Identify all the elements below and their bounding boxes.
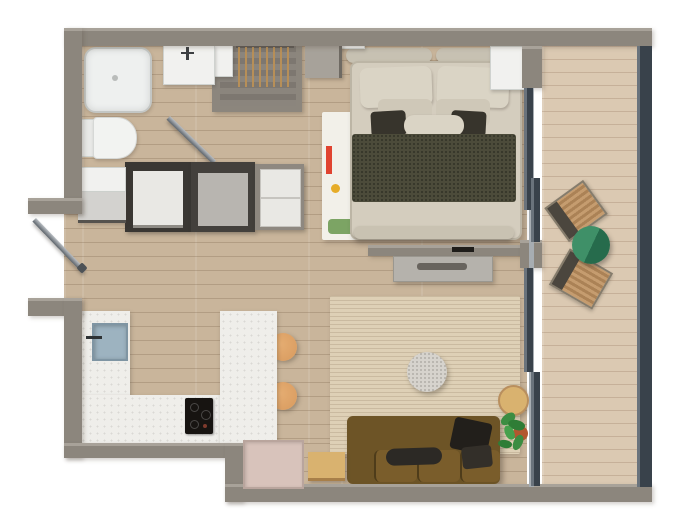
drawer-top — [260, 169, 301, 198]
wall-top — [64, 28, 652, 46]
cooktop-burner-3 — [190, 420, 199, 429]
dresser — [305, 44, 342, 78]
kitchen-counter-island — [220, 311, 277, 443]
shower-tray — [84, 47, 152, 113]
round-pouf — [407, 352, 447, 392]
sliding-glass-panel-3 — [524, 268, 533, 372]
recessed-cabinet — [243, 440, 304, 489]
rug-accent-yellow-dot — [331, 184, 340, 193]
pillow-dark-left — [370, 110, 406, 137]
wardrobe-hangers — [238, 47, 292, 87]
round-side-table — [498, 385, 529, 416]
wall-entry-jog — [28, 198, 82, 214]
balcony-bistro-table — [572, 226, 610, 264]
floor-plan — [0, 0, 680, 532]
toilet-bowl — [93, 117, 137, 159]
cooktop-burner-1 — [190, 403, 199, 412]
throw-blanket — [352, 134, 516, 202]
sink-vanity — [163, 45, 215, 85]
wall-left-lower — [64, 298, 82, 458]
sliding-glass-panel-2 — [531, 178, 540, 242]
hall-shelf — [78, 167, 126, 192]
shower-drain-icon — [112, 75, 118, 81]
square-side-table — [308, 452, 345, 481]
cooktop-dial-icon — [203, 424, 207, 428]
vanity-faucet-bar-icon — [181, 52, 194, 54]
tv-console-handle — [417, 263, 467, 270]
washer-unit-front — [133, 171, 183, 228]
sofa-pillow-small — [461, 444, 493, 469]
wardrobe-door-panel — [214, 43, 233, 77]
wall-kitchen-bottom — [64, 443, 228, 458]
tv-partition-rail — [368, 245, 526, 256]
drawer-bottom — [260, 198, 301, 227]
wall-left-upper — [64, 28, 82, 214]
balcony-glass-balustrade — [637, 46, 652, 487]
pillow-lumbar — [404, 115, 464, 136]
bed-foot-rail — [354, 226, 514, 239]
nightstand — [490, 46, 525, 90]
sink-faucet-icon — [86, 336, 102, 339]
appliance-unit-front — [198, 173, 248, 226]
rug-accent-red-bar — [326, 146, 332, 174]
wall-balcony-stub-top — [522, 46, 542, 88]
sofa-pillow-lumbar — [386, 447, 443, 466]
sliding-glass-panel-4 — [531, 372, 540, 486]
cooktop-burner-2 — [201, 410, 211, 420]
kitchen-sink — [92, 323, 128, 361]
hall-cabinet — [78, 192, 126, 223]
tv-soundbar-icon — [452, 247, 474, 252]
